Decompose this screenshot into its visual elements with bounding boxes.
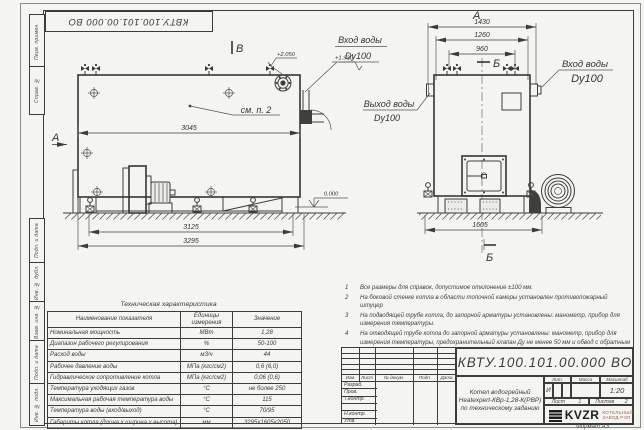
table-row: Гидравлическое сопротивление котлаМПа (к…	[48, 372, 302, 383]
svg-text:Dy100: Dy100	[571, 73, 604, 85]
svg-text:1605: 1605	[472, 222, 488, 229]
view-mark-B: В	[236, 43, 243, 55]
tb-scale-value: 1:20	[600, 383, 634, 398]
svg-text:0.000: 0.000	[324, 192, 339, 198]
table-row: Температура воды (вход/выход)°С70/95	[48, 406, 302, 417]
table-row: Диапазон рабочего регулирования%50-100	[48, 339, 302, 350]
note-2: 2На боковой стенке котла в области топоч…	[343, 294, 631, 311]
inlet-label-top: Вход воды Dy100	[305, 35, 387, 92]
svg-text:Вход воды: Вход воды	[562, 59, 608, 70]
crosshair-mark-icon	[205, 186, 217, 198]
callout-see-item-2: см. п. 2	[241, 105, 272, 115]
tb-col-izm: Изм.	[342, 374, 359, 381]
tb-sheets: Листов2	[589, 398, 634, 405]
tb-col-docnum: № докум.	[375, 374, 413, 381]
air-valve-icon	[443, 64, 451, 75]
tech-table-header-row: Наименование показателя Единицы измерени…	[48, 312, 302, 328]
air-valve-icon	[503, 64, 511, 75]
table-row: Номинальная мощностьМВт1,28	[48, 328, 302, 339]
tb-col-list: Лист	[359, 374, 375, 381]
elevation-inlet: +2.050	[268, 52, 297, 74]
tb-lit-value: И	[544, 383, 553, 398]
tb-doc-number: КВТУ.100.101.00.000 ВО	[456, 348, 634, 376]
drain-valve-icon	[86, 198, 94, 212]
note-3: 3На подводящей трубе котла, до запорной …	[343, 312, 631, 329]
tb-mass-header: Масса	[571, 376, 600, 383]
tb-product-name: Котел водогрейный Heatexpert-КВр-1,28-К(…	[456, 376, 544, 425]
air-valve-icon	[92, 64, 100, 75]
kvzr-logo-text: KVZR	[565, 408, 600, 422]
side-view: В А см. п. 2 3045 0.000 31	[51, 35, 387, 250]
tb-mass-value	[571, 383, 600, 398]
inlet-flange-right	[530, 84, 541, 96]
table-row: Рабочее давление водыМПа (кгс/см2)0,6 (6…	[48, 361, 302, 372]
svg-text:3295: 3295	[183, 238, 199, 245]
air-valve-icon	[453, 64, 461, 75]
sheet-format-label: Формат А3	[555, 424, 630, 430]
view-mark-A-left: А	[51, 132, 59, 144]
title-block-left-grid: Изм. Лист № докум. Подп. Дата Разраб. Пр…	[342, 348, 456, 425]
tb-row-utv: Утв.	[342, 418, 377, 425]
drain-valve-icon	[424, 183, 432, 197]
inlet-flange	[275, 75, 291, 91]
svg-text:+2.050: +2.050	[277, 52, 296, 58]
crosshair-mark-icon	[91, 186, 103, 198]
crosshair-mark-icon	[88, 87, 100, 99]
outlet-pipe	[300, 90, 331, 130]
svg-text:+1.930: +1.930	[335, 56, 354, 62]
outlet-label: Выход воды Dy100	[363, 93, 430, 123]
kvzr-logo-icon	[549, 409, 562, 422]
tb-scale-header: Масштаб	[600, 376, 634, 383]
svg-text:3125: 3125	[183, 224, 199, 231]
tech-table-title: Техническая характеристика	[47, 301, 290, 308]
table-row: Расход водым3/ч44	[48, 350, 302, 361]
tb-lit-header: Лит.	[544, 376, 571, 383]
table-row: Температура уходящих газов°Сне более 250	[48, 383, 302, 394]
tb-col-podp: Подп.	[413, 374, 437, 381]
margin-cell-vzam-inv: Взам. инв. №	[29, 301, 45, 342]
blower-fan	[529, 175, 575, 214]
title-block: Изм. Лист № докум. Подп. Дата Разраб. Пр…	[341, 347, 633, 424]
margin-cell-inv-podl: Инв. № подл.	[29, 383, 45, 426]
svg-text:Выход воды: Выход воды	[364, 99, 415, 109]
tb-lit-cell-3	[562, 383, 571, 398]
outlet-flange-left	[427, 84, 435, 96]
crosshair-mark-icon	[223, 87, 235, 99]
section-mark-B-top: Б	[493, 58, 500, 70]
svg-text:960: 960	[476, 46, 488, 53]
inlet-label-right: Вход воды Dy100	[542, 59, 613, 87]
section-mark-B-bottom: Б	[486, 252, 493, 264]
inspection-hatch	[502, 93, 521, 110]
air-valve-icon	[266, 64, 274, 75]
svg-text:Dy100: Dy100	[374, 113, 400, 123]
front-base	[438, 196, 524, 213]
margin-cell-podp-data-2: Подп. и дата	[29, 340, 45, 385]
table-row: Максимальная рабочая температура воды°С1…	[48, 395, 302, 406]
svg-text:Вход воды: Вход воды	[338, 35, 382, 45]
elevation-zero: 0.000	[295, 192, 348, 208]
svg-text:1430: 1430	[474, 19, 490, 26]
kvzr-logo-subtitle: КОТЕЛЬНЫЙ ЗАВОД РЭП	[602, 410, 633, 420]
svg-text:3045: 3045	[181, 125, 197, 132]
notes-list: 1Все размеры для справок, допустимое отк…	[343, 284, 631, 357]
tb-logo-cell: KVZR КОТЕЛЬНЫЙ ЗАВОД РЭП	[544, 405, 634, 425]
dim-1260: 1260	[436, 32, 528, 80]
burner-assembly	[123, 166, 175, 213]
tb-lit-cell-2	[553, 383, 562, 398]
table-row: Габариты котла (длина х ширина х высота)…	[48, 417, 302, 428]
tb-sheet: Лист1	[544, 398, 589, 405]
drain-valve-icon	[193, 198, 201, 212]
note-1: 1Все размеры для справок, допустимое отк…	[343, 284, 631, 293]
tb-col-data: Дата	[437, 374, 456, 381]
front-view: А Б 1430 1260 960	[363, 10, 613, 264]
furnace-door	[462, 156, 506, 196]
tech-table: Наименование показателя Единицы измерени…	[47, 311, 302, 429]
svg-text:1260: 1260	[474, 32, 490, 39]
air-valve-icon	[81, 64, 89, 75]
dim-3045: 3045	[78, 125, 300, 138]
boiler-drawing: В А см. п. 2 3045 0.000 31	[43, 10, 634, 282]
air-valve-icon	[205, 64, 213, 75]
crosshair-mark-icon	[81, 147, 93, 159]
